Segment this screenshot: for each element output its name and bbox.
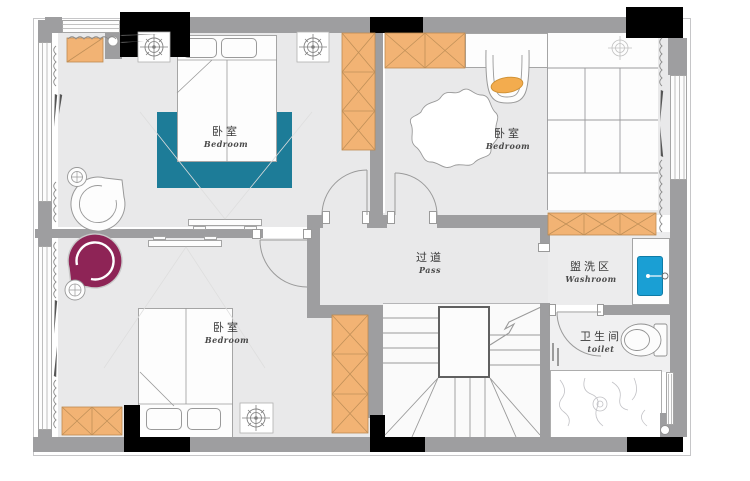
structural-column	[626, 7, 683, 38]
pillow	[187, 408, 221, 430]
wall-stair-right	[540, 303, 550, 437]
door-jamb	[303, 229, 312, 239]
label-toilet: 卫生间 toilet	[580, 331, 622, 354]
tatami-platform	[547, 33, 658, 210]
wall	[367, 215, 387, 228]
wall	[33, 437, 124, 452]
wall	[190, 437, 370, 452]
room-name-en: Pass	[416, 266, 444, 275]
door-jamb	[252, 229, 261, 239]
wall	[425, 437, 627, 452]
stair-landing	[438, 306, 490, 378]
wall	[423, 17, 626, 33]
room-name-en: Bedroom	[205, 336, 249, 345]
wall-divider-bedrooms	[370, 33, 383, 215]
room-name-zh: 卧室	[205, 322, 249, 335]
room-name-zh: 卫生间	[580, 331, 622, 344]
wall	[307, 305, 383, 318]
pillow	[221, 38, 257, 58]
room-name-en: Washroom	[565, 275, 616, 284]
wall	[38, 20, 52, 42]
room-name-en: toilet	[580, 345, 622, 354]
wall	[310, 17, 370, 33]
door-jamb	[362, 211, 370, 224]
wall-stair-left	[368, 318, 383, 418]
dresser-bedroom3	[148, 240, 222, 247]
window-top	[62, 20, 120, 33]
window-left-upper	[38, 42, 52, 202]
wall	[540, 215, 550, 243]
label-bedroom-bottom-left: 卧室 Bedroom	[205, 322, 249, 345]
washbasin	[637, 256, 663, 296]
door-jamb	[429, 211, 437, 224]
structural-column	[370, 17, 423, 33]
structural-column	[120, 12, 190, 57]
wall	[437, 215, 540, 228]
door-jamb	[322, 211, 330, 224]
wall-divider-floors	[35, 229, 263, 238]
door-jamb	[549, 304, 556, 316]
floor-plan: 卧室 Bedroom 卧室 Bedroom 卧室 Bedroom 过道 Pass…	[0, 0, 750, 481]
room-name-zh: 卧室	[486, 128, 530, 141]
room-name-en: Bedroom	[486, 142, 530, 151]
column	[668, 38, 687, 75]
window-left-lower	[38, 246, 52, 430]
door-jamb	[538, 243, 550, 252]
room-name-zh: 盥洗区	[565, 261, 616, 274]
wall-corridor-left	[307, 228, 320, 305]
wall	[190, 17, 310, 33]
room-name-zh: 卧室	[204, 126, 248, 139]
door-jamb	[597, 304, 604, 316]
wall	[600, 305, 673, 315]
dresser-bedroom1	[188, 219, 262, 226]
window-right-upper	[670, 75, 687, 180]
door-jamb	[387, 211, 395, 224]
structural-column	[124, 437, 190, 452]
label-bedroom-top-left: 卧室 Bedroom	[204, 126, 248, 149]
structural-column	[370, 437, 425, 452]
label-corridor: 过道 Pass	[416, 252, 444, 275]
shower-marble-floor	[550, 370, 662, 440]
label-washroom: 盥洗区 Washroom	[565, 261, 616, 284]
structural-column	[627, 437, 683, 452]
dresser-foot	[193, 226, 206, 230]
wall	[38, 202, 52, 246]
dresser-foot	[204, 236, 217, 240]
wall	[307, 215, 323, 228]
window-right-lower	[666, 372, 674, 425]
room-name-zh: 过道	[416, 252, 444, 265]
vanity-counter	[465, 33, 548, 68]
room-name-en: Bedroom	[204, 140, 248, 149]
pillow	[146, 408, 182, 430]
label-bedroom-top-right: 卧室 Bedroom	[486, 128, 530, 151]
dresser-foot	[153, 236, 166, 240]
